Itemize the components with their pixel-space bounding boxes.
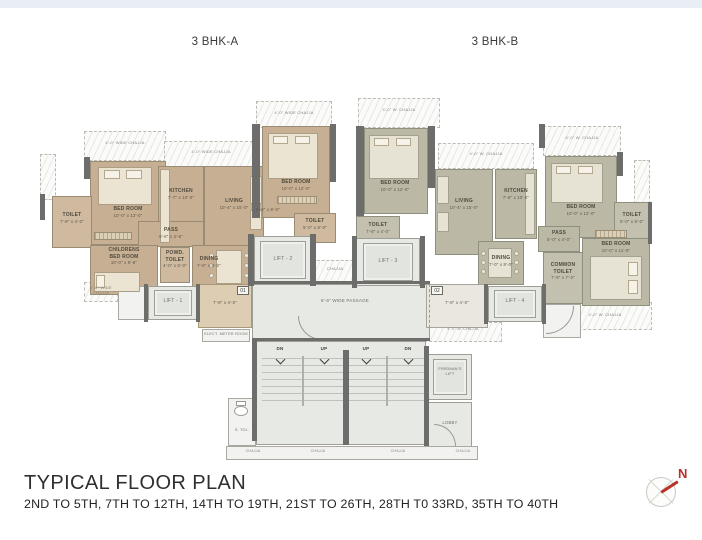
sofa [437,212,449,232]
pillow [295,136,310,144]
unit-b-bedroom-1-label: BED ROOM 10'-0" x 12'-0" [362,180,428,192]
unit-b-bedroom-3-label: BED ROOM 10'-0" x 11'-0" [584,241,648,253]
arrow-down-icon [275,355,285,365]
wall-segment [330,124,336,182]
unit-02-marker: 02 [431,286,443,295]
wardrobe [595,230,627,238]
unit-a-master-bedroom-label: BED ROOM 10'-0" x 12'-0" [90,206,166,218]
unit-a-powder-toilet-label: POWD. TOILET 4'-0" x 5'-0" [158,250,192,268]
lift-name: LIFT - 1 [148,298,198,305]
stair-direction: DN [404,346,411,351]
room-dims: 5'-0" x 8'-0" [614,219,650,224]
lift-4-label: LIFT - 4 [488,298,542,305]
arrow-down-icon [319,355,329,365]
unit-b-pass-label: PASS 5'-0" x 4'-0" [538,230,580,242]
room-dims: 7'-8" x 7'-0" [543,275,583,280]
room-name: CHILDRENS BED ROOM [88,247,160,260]
room-dims: 10'-0" x 11'-0" [584,248,648,253]
lift-car [433,359,467,395]
fireman-lift-label: FIREMAN'S LIFT [428,366,472,376]
stair-rail [302,356,304,406]
unit-b-kitchen-label: KITCHEN 7'-6" x 10'-0" [494,188,538,200]
room-dims: 7'-8" x 4'-0" [52,219,92,224]
pillow [104,170,120,179]
chajja-area [84,131,166,161]
meter-room-label: ELECT. METER ROOM [202,332,250,337]
wall-segment [428,126,435,188]
chajja-label: CHAJJA [298,449,338,453]
chajja-label: 2'-6" WIDE CHAJJA [84,285,118,295]
room-name: POWD. TOILET [158,250,192,263]
chajja-label: 4'-0" W. CHAJJA [558,312,652,317]
chair [209,273,214,278]
lift-name: LIFT - 2 [254,256,312,263]
chajja-label: 4'-0" W. CHAJJA [543,135,621,140]
wardrobe [277,196,317,204]
wall-segment [252,281,430,284]
chajja-label: CHAJJA [448,449,478,453]
chajja-area [543,126,621,156]
room-dims: 4'-0" x 5'-0" [158,263,192,268]
pillow [628,262,638,276]
servant-toilet-label: S. TOL. [226,428,258,433]
wall-segment [252,338,430,341]
unit-b-dining-label: DINING 7'-0" x 8'-0" [478,255,524,267]
stair-direction: UP [363,346,370,351]
unit-01-marker: 01 [237,286,249,295]
arrow-down-icon [403,355,413,365]
room-dims: 5'-0" x 4'-0" [538,237,580,242]
arrow-down-icon [361,355,371,365]
pillow [628,280,638,294]
wall-segment [252,341,257,441]
unit-b-toilet-left-label: TOILET 7'-8" x 4'-0" [356,222,400,234]
chajja-label: 4'-0" W. CHAJJA [438,151,534,156]
chajja-label: 4'-0" W. CHAJJA [424,327,502,331]
room-dims: 10'-0" x 12'-0" [547,211,615,216]
chair [514,269,519,274]
pillow [556,166,571,174]
room-dims: 5'-0" x 8'-0" [294,225,336,230]
room-dims: 7'-8" x 4'-0" [426,300,488,305]
room-dims: 4'-0" x 8'-0" [246,207,290,212]
top-bar [0,0,702,8]
unit-b-bedroom-2-label: BED ROOM 10'-0" x 12'-0" [547,204,615,216]
room-dims: 7'-0" x 8'-0" [478,262,524,267]
lift-1-label: LIFT - 1 [148,298,198,305]
chajja-area [634,160,650,204]
unit-a-toilet-attached-label: TOILET 5'-0" x 8'-0" [294,218,336,230]
floor-plan: 3 BHK-A 3 BHK-B [0,0,702,540]
kitchen-counter [525,173,535,235]
room-dims: 10'-0" x 12'-0" [362,187,428,192]
unit-a-pass-label: PASS 9'-8" x 3'-6" [138,227,204,239]
unit-a-bedroom-2-label: BED ROOM 10'-0" x 12'-0" [263,179,329,191]
core-lobby-label: LOBBY [428,420,472,425]
pillow [578,166,593,174]
room-dims: 7'-6" x 10'-0" [494,195,538,200]
pillow [273,136,288,144]
wall-segment [617,152,623,176]
unit-b-living-label: LIVING 10'-4" x 15'-0" [435,198,493,210]
north-label: N [678,466,687,481]
pillow [374,138,389,146]
north-indicator: N [640,464,700,516]
room-dims: 7'-8" x 4'-0" [198,300,252,305]
chajja-label: 4'-0" WIDE CHAJJA [84,140,166,145]
stair-direction: UP [321,346,328,351]
room-dims: 7'-7" x 10'-0" [157,195,205,200]
wc-fixture [234,406,248,416]
room-name: COMMON TOILET [543,262,583,275]
wall-segment [84,157,90,179]
chajja-label: 4'-0" WIDE CHAJJA [256,110,332,115]
wall-segment [420,236,425,288]
chajja-label: CHAJJA [378,449,418,453]
wall-segment [356,126,364,216]
chair [481,269,486,274]
wardrobe [94,232,132,240]
chajja-area [358,98,440,128]
unit-a-entrance-dims: 7'-8" x 4'-0" [198,300,252,305]
unit-b-entrance-dims: 7'-8" x 4'-0" [426,300,488,305]
wall-segment [343,350,349,445]
plan-floor-range: 2ND TO 5TH, 7TH TO 12TH, 14TH TO 19TH, 2… [24,497,558,511]
unit-a-toilet-left-label: TOILET 7'-8" x 4'-0" [52,212,92,224]
lift-3-label: LIFT - 3 [356,258,420,265]
chajja-area [438,143,534,169]
wall-segment [40,194,45,220]
unit-b-common-toilet-label: COMMON TOILET 7'-8" x 7'-0" [543,262,583,280]
room-dims: 10'-0" x 12'-0" [90,213,166,218]
passage-label: 8'-6" WIDE PASSAGE [300,298,390,304]
room-dims: 7'-8" x 4'-0" [356,229,400,234]
stair-up-label: UP [354,346,378,363]
wc-tank [236,401,246,406]
unit-a-children-bedroom-label: CHILDRENS BED ROOM 10'-0" x 9'-8" [88,247,160,265]
stair-up-label: UP [312,346,336,363]
room-dims: 9'-8" x 3'-6" [138,234,204,239]
room-dims: 10'-4" x 15'-0" [435,205,493,210]
plan-title: TYPICAL FLOOR PLAN [24,472,246,495]
lift-2-label: LIFT - 2 [254,256,312,263]
pillow [396,138,411,146]
unit-a-title: 3 BHK-A [160,36,270,48]
unit-b-title: 3 BHK-B [440,36,550,48]
unit-b-toilet-right-label: TOILET 5'-0" x 8'-0" [614,212,650,224]
lift-name: LIFT - 3 [356,258,420,265]
room-dims: 10'-0" x 12'-0" [263,186,329,191]
pillow [126,170,142,179]
chajja-label: CHAJJA [312,266,358,271]
stair-down-label: DN [268,346,292,363]
room-dims: 7'-6" x 8'-0" [192,263,226,268]
room-dims: 10'-0" x 9'-8" [88,260,160,265]
lift-name: LIFT - 4 [488,298,542,305]
unit-boundary-line [429,284,430,328]
chajja-label: 4'-0" W. CHAJJA [358,107,440,112]
chajja-label: 4'-0" WIDE CHAJJA [164,149,258,154]
stair-direction: DN [276,346,283,351]
unit-a-dress-label: 4'-0" x 8'-0" [246,207,290,212]
unit-a-kitchen-label: KITCHEN 7'-7" x 10'-0" [157,188,205,200]
passage [252,284,430,340]
chajja-label: CHAJJA [238,449,268,453]
unit-a-dining-label: DINING 7'-6" x 8'-0" [192,256,226,268]
wall-segment [542,284,546,324]
stair-rail [386,356,388,406]
chajja-area [164,141,258,168]
stair-down-label: DN [396,346,420,363]
wall-segment [424,346,429,446]
